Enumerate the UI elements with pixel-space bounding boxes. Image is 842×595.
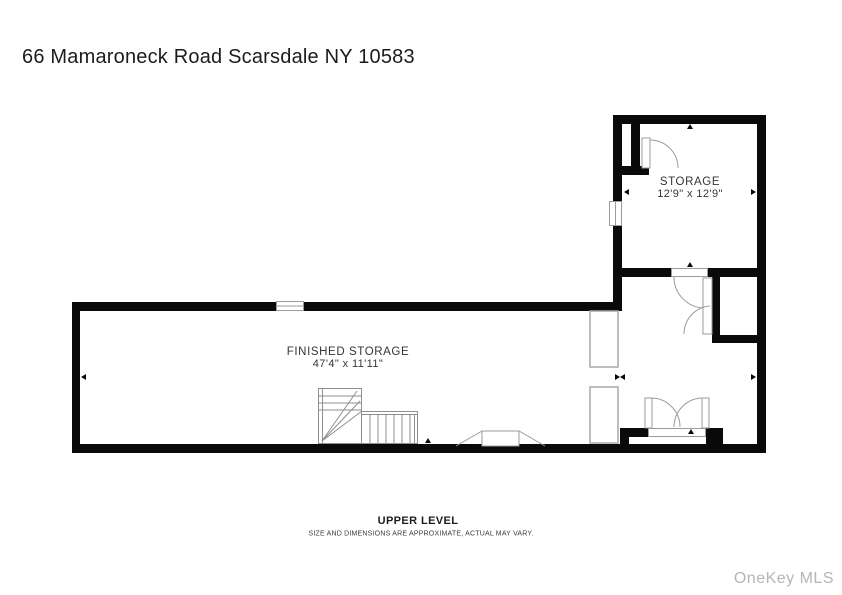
room-name: STORAGE (657, 176, 723, 188)
level-title: UPPER LEVEL (378, 515, 459, 527)
floorplan-page: { "header": { "title": "66 Mamaroneck Ro… (0, 0, 842, 595)
room-name: FINISHED STORAGE (287, 346, 410, 358)
hatch-icon (456, 431, 545, 446)
disclaimer-text: SIZE AND DIMENSIONS ARE APPROXIMATE, ACT… (308, 531, 533, 538)
floor-plan (0, 0, 842, 595)
dimension-tick (81, 124, 756, 443)
room-dimensions: 12'9" x 12'9" (657, 188, 723, 200)
room-label-storage: STORAGE 12'9" x 12'9" (657, 176, 723, 200)
stairs-icon (319, 389, 418, 444)
room-label-finished-storage: FINISHED STORAGE 47'4" x 11'11" (287, 346, 410, 370)
window-icon (277, 202, 622, 311)
watermark-onekey-mls: OneKey MLS (734, 570, 834, 588)
knee-wall (590, 311, 618, 443)
walls (72, 115, 766, 453)
room-dimensions: 47'4" x 11'11" (287, 358, 410, 370)
